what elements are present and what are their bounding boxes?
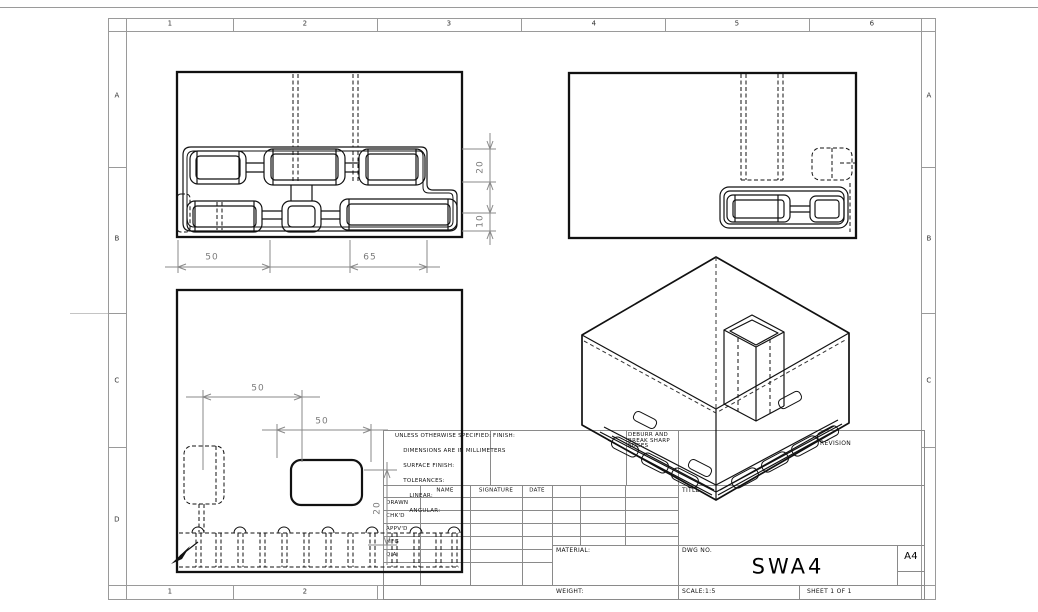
drawing-sheet: 1 2 3 4 5 6 1 2 A B C D A B C UNLESS OTH… xyxy=(0,0,1038,612)
plan-view xyxy=(171,290,462,572)
front-view xyxy=(177,72,462,237)
side-view xyxy=(569,73,856,238)
iso-view xyxy=(582,257,849,500)
drawing-views xyxy=(0,0,1038,612)
